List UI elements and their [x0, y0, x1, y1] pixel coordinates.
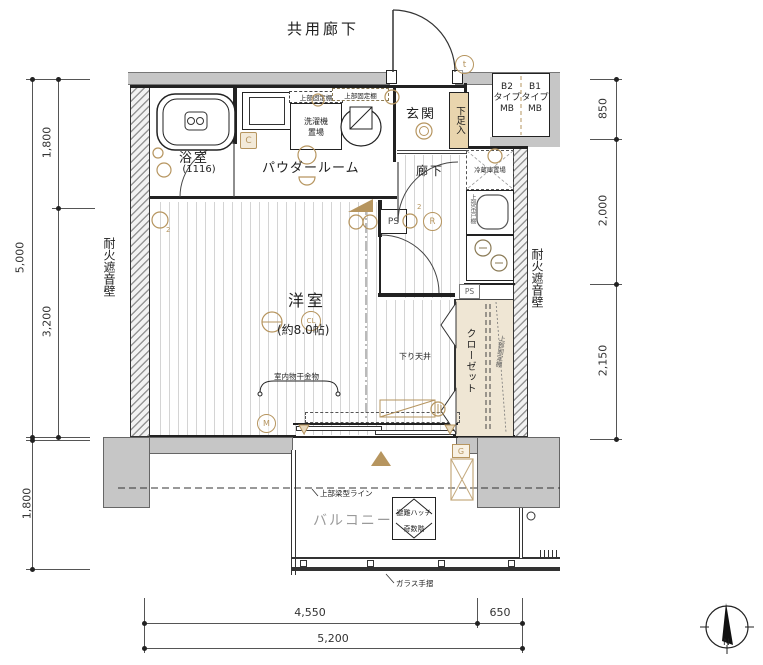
door-stub-wall: [378, 293, 455, 297]
fridge-space-label: 冷蔵庫置場: [466, 163, 514, 175]
kitchen-top-wall: [464, 146, 528, 149]
balcony-partition: [519, 508, 523, 558]
rail-grille: [540, 550, 559, 558]
curtain-box: [305, 412, 460, 423]
evacuation-hatch-label2: 奇数階: [393, 524, 435, 533]
rail-post: [438, 560, 445, 567]
window-sill-top: [293, 423, 458, 425]
hallway-label: 廊下: [416, 162, 444, 179]
beam-line-label: 上部梁型ライン: [320, 488, 373, 499]
compass-north-label: N: [723, 638, 730, 648]
entrance-door-arc: [393, 10, 455, 72]
bathtub-outer: [157, 94, 235, 150]
floor-plan: B2 タイプ MB B1 タイプ MB 上部固定棚 洗濯機 置場 上部固定棚 冷…: [0, 0, 763, 665]
mb-right-b1: B1: [529, 82, 541, 93]
shoe-cabinet: 下足入: [449, 92, 469, 149]
bathtub-inner: [163, 99, 229, 145]
pipe-space-box: PS: [380, 209, 407, 234]
door-jamb-left: [386, 70, 397, 84]
rail-post: [300, 560, 307, 567]
rail-post: [508, 560, 515, 567]
common-corridor-label: 共用廊下: [287, 18, 359, 39]
evacuation-hatch-box: [392, 497, 436, 540]
western-room-size-label: (約8.0帖): [277, 321, 329, 338]
glass-rail-label: ガラス手摺: [396, 578, 433, 589]
wall-light-count: 2: [166, 226, 170, 234]
room-bottom-wall-left: [150, 435, 296, 437]
mb-left-type: タイプ: [493, 93, 520, 104]
dim-left-lower: 3,200: [41, 300, 54, 344]
shoe-cabinet-label: 下足入: [452, 106, 466, 135]
balcony-rail-bottom-line: [291, 567, 560, 571]
window-sash-right: [375, 430, 456, 435]
fire-wall-left-label: 耐火遮音壁: [101, 237, 118, 329]
dim-bottom-main: 4,550: [280, 606, 340, 619]
dim-line-left-inner: [58, 79, 59, 437]
symbol-half-light: [299, 177, 315, 185]
bath-powder-wall: [233, 88, 237, 144]
vanity-basin: [249, 97, 285, 125]
dim-bottom-side: 650: [478, 606, 522, 619]
mb-right-mb: MB: [528, 104, 542, 115]
dim-bottom-total: 5,200: [303, 632, 363, 645]
evacuation-hatch-label1: 避難ハッチ: [393, 508, 435, 517]
mb-left-mb: MB: [500, 104, 514, 115]
toilet-bowl: [341, 108, 381, 146]
mb-left-column: B2 タイプ MB: [493, 78, 521, 118]
t-badge: t: [455, 55, 474, 74]
dim-right-middle: 2,000: [597, 189, 610, 233]
fire-wall-right: [513, 148, 528, 437]
dim-line-left-outer: [32, 79, 33, 437]
pipe-space-box-2: PS: [459, 284, 480, 299]
western-room-label: 洋室: [288, 287, 326, 311]
symbol-bath-light: [157, 163, 171, 177]
powder-south-wall: [150, 196, 397, 199]
dim-left-balcony: 1,800: [21, 482, 34, 526]
powder-room-label: パウダールーム: [262, 157, 360, 176]
washer-label-line1: 洗濯機: [304, 116, 328, 127]
washer-label-line2: 置場: [308, 127, 324, 138]
symbol-bath-control: [153, 148, 163, 158]
washer-label: 洗濯機 置場: [292, 108, 340, 146]
indoor-drying-label: 室内物干金物: [274, 371, 319, 382]
r-badge: R: [423, 212, 442, 231]
dim-right-top: 850: [597, 87, 610, 131]
balcony-label: バルコニー: [313, 510, 393, 530]
window-sill-bottom: [293, 436, 458, 438]
entrance-label: 玄関: [406, 103, 436, 122]
dim-line-right: [616, 79, 617, 439]
rail-post: [367, 560, 374, 567]
c-badge: C: [240, 132, 257, 149]
dim-line-bottom-main: [144, 623, 522, 624]
dim-left-total: 5,000: [14, 236, 27, 280]
kitchen-stove-unit: [466, 235, 514, 281]
room-floor: [152, 202, 378, 435]
dim-line-bottom-total: [144, 648, 522, 649]
entrance-step-line1: [397, 150, 467, 151]
mb-wall-right: [550, 83, 560, 140]
m-badge: M: [257, 414, 276, 433]
dim-right-bottom: 2,150: [597, 339, 610, 383]
mb-right-type: タイプ: [521, 93, 548, 104]
powder-hall-wall: [393, 88, 396, 162]
gas-meter-badge: G: [452, 444, 470, 458]
entrance-step-line2: [397, 153, 467, 154]
balcony-entry-marker: [371, 451, 391, 466]
lowered-ceiling-label: 下り天井: [399, 351, 431, 362]
room-door-leaf: [379, 237, 381, 293]
mb-right-column: B1 タイプ MB: [521, 78, 549, 118]
corridor-wall-left: [128, 72, 390, 85]
r-badge-count: 2: [417, 203, 421, 211]
entrance-marker: [416, 123, 432, 139]
fire-wall-right-label: 耐火遮音壁: [529, 248, 546, 340]
closet-label: クローゼット: [462, 328, 477, 428]
kitchen-cupboard-label: 上部吊戸棚: [468, 194, 477, 234]
bottom-wall-block-right: [477, 437, 560, 508]
unit-top-wall: [130, 85, 467, 88]
bathtub-faucet: [185, 112, 207, 130]
toilet-tank: [350, 107, 372, 129]
dim-left-upper: 1,800: [41, 121, 54, 165]
toilet-shelf-label: 上部固定棚: [332, 89, 389, 100]
bottom-wall-block-left: [103, 437, 150, 508]
bathroom-module-label: (1116): [180, 164, 218, 175]
mb-left-b2: B2: [501, 82, 513, 93]
fire-wall-left: [130, 86, 150, 437]
window-sash-left: [296, 426, 382, 431]
